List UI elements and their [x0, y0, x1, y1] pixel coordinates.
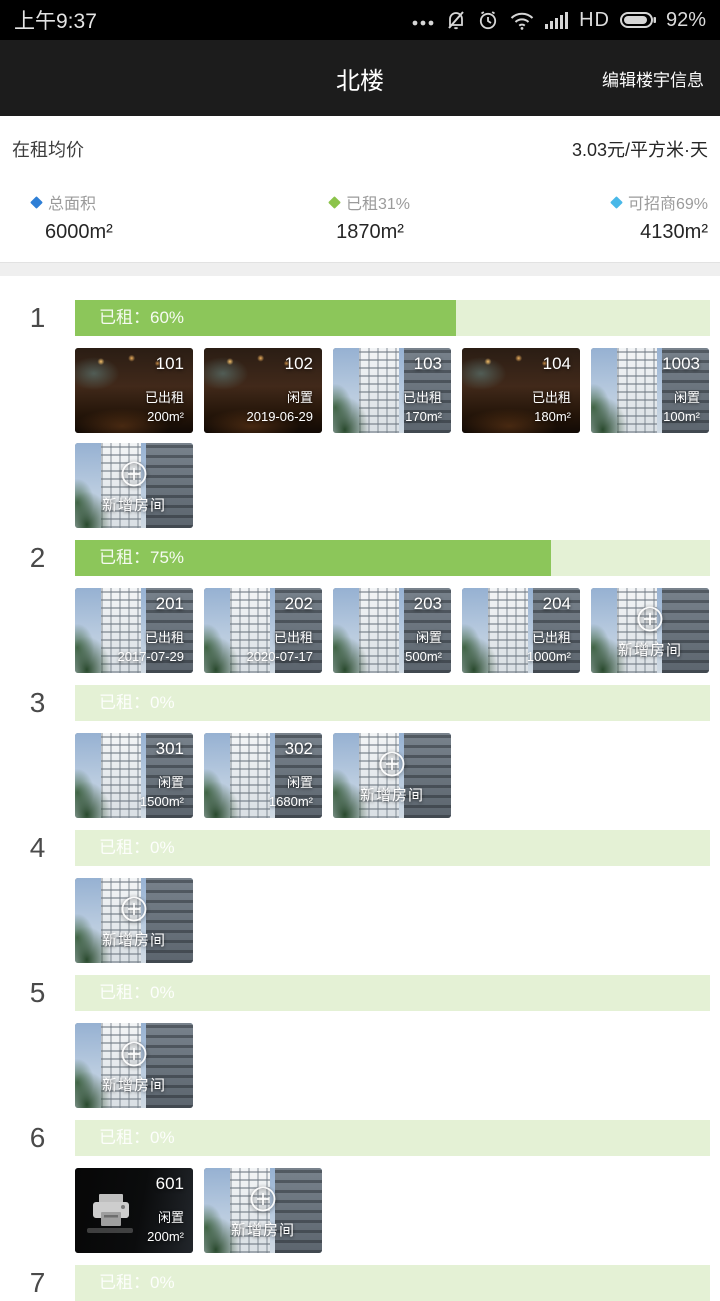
room-number: 601: [156, 1174, 184, 1194]
section-divider: [0, 262, 720, 276]
floor-occupancy-bar[interactable]: 已租：0%: [75, 685, 710, 721]
add-room-label: 新增房间: [102, 929, 166, 950]
room-area: 2017-07-29: [118, 648, 185, 667]
room-tile[interactable]: 103 已出租 170m²: [333, 348, 451, 433]
stat-total-area: 总面积 6000m²: [12, 190, 257, 244]
battery-icon: [620, 10, 656, 30]
floor-occupancy-label: 已租：0%: [75, 1265, 710, 1301]
more-dots-icon: [411, 9, 435, 31]
app-header: 北楼 编辑楼宇信息: [0, 40, 720, 116]
back-button[interactable]: [16, 55, 62, 101]
floor-number: 3: [0, 687, 75, 719]
floor-occupancy-label: 已租：0%: [75, 830, 710, 866]
plus-circle-icon: [249, 1185, 277, 1213]
room-area: 170m²: [403, 408, 442, 427]
status-time: 上午9:37: [14, 5, 97, 35]
edit-building-info-button[interactable]: 编辑楼宇信息: [602, 66, 704, 91]
battery-percent: 92%: [666, 9, 706, 32]
room-meta: 闲置 500m²: [405, 629, 442, 667]
add-room-label: 新增房间: [231, 1219, 295, 1240]
alarm-clock-icon: [477, 9, 499, 31]
floor-occupancy-bar[interactable]: 已租：0%: [75, 1120, 710, 1156]
room-meta: 闲置 100m²: [663, 389, 700, 427]
room-number: 102: [285, 354, 313, 374]
room-number: 302: [285, 739, 313, 759]
floor-occupancy-bar[interactable]: 已租：75%: [75, 540, 710, 576]
room-area: 200m²: [145, 408, 184, 427]
room-meta: 闲置 1680m²: [269, 774, 313, 812]
stat-value: 4130m²: [640, 221, 708, 244]
room-meta: 闲置 1500m²: [140, 774, 184, 812]
room-area: 100m²: [663, 408, 700, 427]
floor-rooms: 201 已出租 2017-07-29 202 已出租 2020-07-17: [75, 588, 710, 673]
add-room-tile[interactable]: 新增房间: [204, 1168, 322, 1253]
floor-rooms: 新增房间: [75, 1023, 710, 1108]
add-room-tile[interactable]: 新增房间: [333, 733, 451, 818]
room-meta: 已出租 200m²: [145, 389, 184, 427]
hd-indicator: HD: [579, 9, 610, 32]
add-room-tile[interactable]: 新增房间: [591, 588, 709, 673]
room-tile[interactable]: 101 已出租 200m²: [75, 348, 193, 433]
room-tile[interactable]: 102 闲置 2019-06-29: [204, 348, 322, 433]
stat-label: 已租31%: [346, 190, 410, 214]
photo-caption-smudge: [87, 1228, 133, 1233]
floor-section: 4 已租：0% 新增房间: [0, 830, 720, 963]
room-tile[interactable]: 302 闲置 1680m²: [204, 733, 322, 818]
room-tile[interactable]: 204 已出租 1000m²: [462, 588, 580, 673]
room-status: 闲置: [140, 774, 184, 793]
floor-occupancy-bar[interactable]: 已租：0%: [75, 1265, 710, 1301]
bell-muted-icon: [445, 9, 467, 31]
floor-occupancy-label: 已租：75%: [75, 540, 710, 576]
room-number: 202: [285, 594, 313, 614]
room-area: 1500m²: [140, 793, 184, 812]
room-tile[interactable]: 203 闲置 500m²: [333, 588, 451, 673]
room-status: 已出租: [532, 389, 571, 408]
diamond-icon: [30, 196, 43, 209]
avg-price-value: 3.03元/平方米·天: [572, 136, 708, 162]
room-tile[interactable]: 301 闲置 1500m²: [75, 733, 193, 818]
floor-rooms: 301 闲置 1500m² 302 闲置 1680m²: [75, 733, 710, 818]
room-area: 1000m²: [527, 648, 571, 667]
add-room-label: 新增房间: [102, 494, 166, 515]
floor-occupancy-bar[interactable]: 已租：0%: [75, 975, 710, 1011]
room-status: 已出租: [527, 629, 571, 648]
floor-section: 1 已租：60% 101 已出租 200m²: [0, 300, 720, 528]
room-tile[interactable]: 201 已出租 2017-07-29: [75, 588, 193, 673]
room-tile[interactable]: 104 已出租 180m²: [462, 348, 580, 433]
add-room-tile[interactable]: 新增房间: [75, 1023, 193, 1108]
room-status: 闲置: [405, 629, 442, 648]
add-room-tile[interactable]: 新增房间: [75, 878, 193, 963]
plus-circle-icon: [378, 750, 406, 778]
floor-rooms: 新增房间: [75, 878, 710, 963]
room-number: 201: [156, 594, 184, 614]
floor-section: 7 已租：0%: [0, 1265, 720, 1301]
add-room-label: 新增房间: [360, 784, 424, 805]
room-meta: 已出租 1000m²: [527, 629, 571, 667]
room-status: 闲置: [663, 389, 700, 408]
room-number: 204: [543, 594, 571, 614]
room-tile[interactable]: 601 闲置 200m²: [75, 1168, 193, 1253]
floor-occupancy-bar[interactable]: 已租：60%: [75, 300, 710, 336]
room-number: 301: [156, 739, 184, 759]
floor-number: 2: [0, 542, 75, 574]
room-area: 2019-06-29: [247, 408, 314, 427]
wifi-icon: [509, 9, 535, 31]
add-room-tile[interactable]: 新增房间: [75, 443, 193, 528]
room-number: 103: [414, 354, 442, 374]
floor-number: 4: [0, 832, 75, 864]
floor-occupancy-label: 已租：0%: [75, 975, 710, 1011]
room-area: 1680m²: [269, 793, 313, 812]
room-status: 已出租: [145, 389, 184, 408]
floor-occupancy-label: 已租：0%: [75, 685, 710, 721]
signal-bars-icon: [545, 9, 569, 31]
floor-occupancy-label: 已租：0%: [75, 1120, 710, 1156]
stat-rented: 已租31% 1870m²: [257, 190, 482, 244]
floor-number: 7: [0, 1267, 75, 1299]
floor-number: 1: [0, 302, 75, 334]
room-tile[interactable]: 1003 闲置 100m²: [591, 348, 709, 433]
plus-circle-icon: [636, 605, 664, 633]
floor-section: 5 已租：0% 新增房间: [0, 975, 720, 1108]
diamond-icon: [328, 196, 341, 209]
stat-label: 总面积: [48, 190, 96, 214]
floor-occupancy-bar[interactable]: 已租：0%: [75, 830, 710, 866]
page-title: 北楼: [336, 61, 384, 96]
room-meta: 已出租 2017-07-29: [118, 629, 185, 667]
room-tile[interactable]: 202 已出租 2020-07-17: [204, 588, 322, 673]
room-number: 101: [156, 354, 184, 374]
plus-circle-icon: [120, 1040, 148, 1068]
room-status: 已出租: [403, 389, 442, 408]
room-status: 闲置: [247, 389, 314, 408]
stat-value: 1870m²: [336, 221, 404, 244]
stat-label: 可招商69%: [628, 190, 708, 214]
room-area: 200m²: [147, 1228, 184, 1247]
room-meta: 已出租 180m²: [532, 389, 571, 427]
room-area: 500m²: [405, 648, 442, 667]
room-status: 已出租: [247, 629, 314, 648]
status-bar: 上午9:37: [0, 0, 720, 40]
room-area: 180m²: [532, 408, 571, 427]
diamond-icon: [610, 196, 623, 209]
floors-list: 1 已租：60% 101 已出租 200m²: [0, 276, 720, 1301]
summary-card: 在租均价 3.03元/平方米·天 总面积 6000m² 已租31% 1870m²…: [0, 116, 720, 262]
floor-section: 6 已租：0% 601 闲置 200m²: [0, 1120, 720, 1253]
room-meta: 已出租 2020-07-17: [247, 629, 314, 667]
plus-circle-icon: [120, 460, 148, 488]
avg-price-label: 在租均价: [12, 136, 84, 162]
room-area: 2020-07-17: [247, 648, 314, 667]
room-number: 1003: [662, 354, 700, 374]
floor-rooms: 101 已出租 200m² 102 闲置 2019-06-29: [75, 348, 710, 528]
floor-section: 2 已租：75% 201 已出租 2017-07-29: [0, 540, 720, 673]
room-meta: 闲置 2019-06-29: [247, 389, 314, 427]
plus-circle-icon: [120, 895, 148, 923]
room-status: 已出租: [118, 629, 185, 648]
stat-available: 可招商69% 4130m²: [483, 190, 708, 244]
floor-number: 6: [0, 1122, 75, 1154]
room-status: 闲置: [147, 1209, 184, 1228]
floor-section: 3 已租：0% 301 闲置 1500m²: [0, 685, 720, 818]
room-meta: 已出租 170m²: [403, 389, 442, 427]
room-status: 闲置: [269, 774, 313, 793]
floor-number: 5: [0, 977, 75, 1009]
stat-value: 6000m²: [32, 221, 113, 244]
room-meta: 闲置 200m²: [147, 1209, 184, 1247]
room-number: 104: [543, 354, 571, 374]
floor-rooms: 601 闲置 200m² 新增房间: [75, 1168, 710, 1253]
floor-occupancy-label: 已租：60%: [75, 300, 710, 336]
add-room-label: 新增房间: [102, 1074, 166, 1095]
add-room-label: 新增房间: [618, 639, 682, 660]
room-number: 203: [414, 594, 442, 614]
